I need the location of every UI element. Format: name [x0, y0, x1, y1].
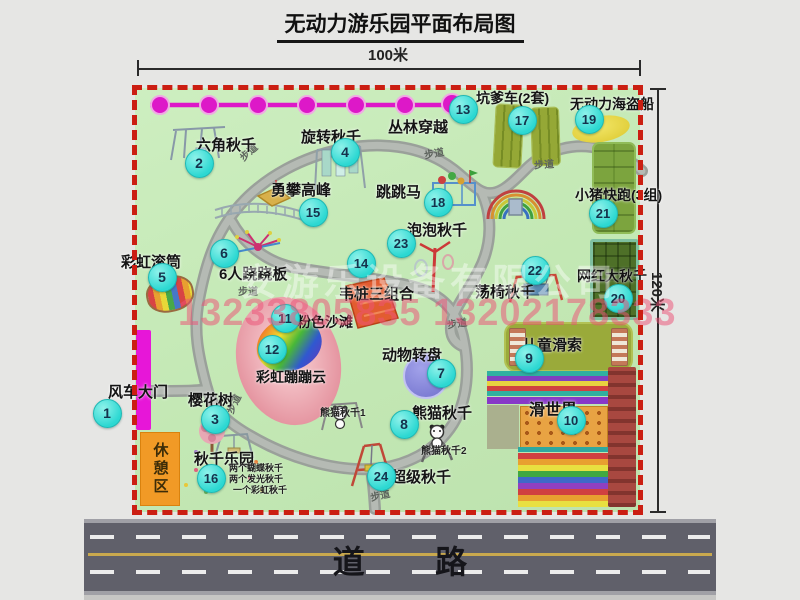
windmill-gate-icon [136, 330, 151, 430]
attraction-badge-1: 1 [93, 399, 122, 428]
page-title: 无动力游乐园平面布局图 [0, 8, 800, 38]
attraction-label-8: 熊猫秋千 [412, 402, 472, 423]
slide-stripes-top [487, 371, 609, 396]
watermark-phones: 13233805835 13202178333 [178, 292, 638, 335]
attraction-badge-15: 15 [299, 198, 328, 227]
attraction-badge-24: 24 [367, 462, 396, 491]
dimension-tick [639, 60, 641, 76]
slide-rainbow-lanes [518, 453, 608, 507]
attraction-badge-16: 16 [197, 464, 226, 493]
attraction-badge-5: 5 [148, 263, 177, 292]
attraction-badge-19: 19 [575, 105, 604, 134]
attraction-label-1: 风车大门 [108, 381, 168, 402]
slide-gray-block [487, 405, 519, 449]
rest-area-block: 休憩区 [140, 432, 180, 506]
attraction-label-24: 超级秋千 [391, 466, 451, 487]
attraction-label-12: 彩虹蹦蹦云 [256, 367, 326, 387]
attraction-badge-3: 3 [201, 405, 230, 434]
attraction-badge-6: 6 [210, 239, 239, 268]
dimension-tick [137, 60, 139, 76]
road: 道路 [84, 519, 716, 595]
dimension-width-label: 100米 [348, 44, 428, 65]
attraction-badge-12: 12 [258, 335, 287, 364]
dimension-line-top [137, 68, 640, 70]
attraction-badge-9: 9 [515, 344, 544, 373]
slide-world-block [487, 367, 637, 507]
sub-label: 一个彩虹秋千 [233, 483, 287, 496]
dimension-tick [650, 88, 666, 90]
attraction-badge-10: 10 [557, 406, 586, 435]
attraction-label-15: 勇攀高峰 [271, 179, 331, 200]
walkway-label: 步道 [534, 155, 555, 171]
attraction-badge-21: 21 [589, 199, 618, 228]
sub-label: 熊猫秋千2 [421, 442, 467, 457]
attraction-badge-13: 13 [449, 95, 478, 124]
dimension-tick [650, 511, 666, 513]
slide-red-column [608, 367, 636, 507]
attraction-badge-8: 8 [390, 410, 419, 439]
sub-label: 熊猫秋千1 [320, 404, 366, 419]
attraction-badge-17: 17 [508, 106, 537, 135]
attraction-label-18: 跳跳马 [376, 181, 421, 202]
attraction-label-13: 丛林穿越 [388, 116, 448, 137]
attraction-label-21: 小猪快跑(3组) [575, 185, 662, 205]
attraction-badge-7: 7 [427, 359, 456, 388]
road-label: 道路 [84, 537, 716, 583]
attraction-label-17: 坑爹车(2套) [476, 88, 549, 108]
attraction-badge-4: 4 [331, 138, 360, 167]
attraction-badge-18: 18 [424, 188, 453, 217]
attraction-label-23: 泡泡秋千 [407, 219, 467, 240]
rest-area-label: 休憩区 [150, 442, 171, 496]
slide-teal-strip [518, 447, 608, 452]
park-layout-map: { "title": "无动力游乐园平面布局图", "dimensions": … [0, 0, 800, 600]
attraction-badge-2: 2 [185, 149, 214, 178]
